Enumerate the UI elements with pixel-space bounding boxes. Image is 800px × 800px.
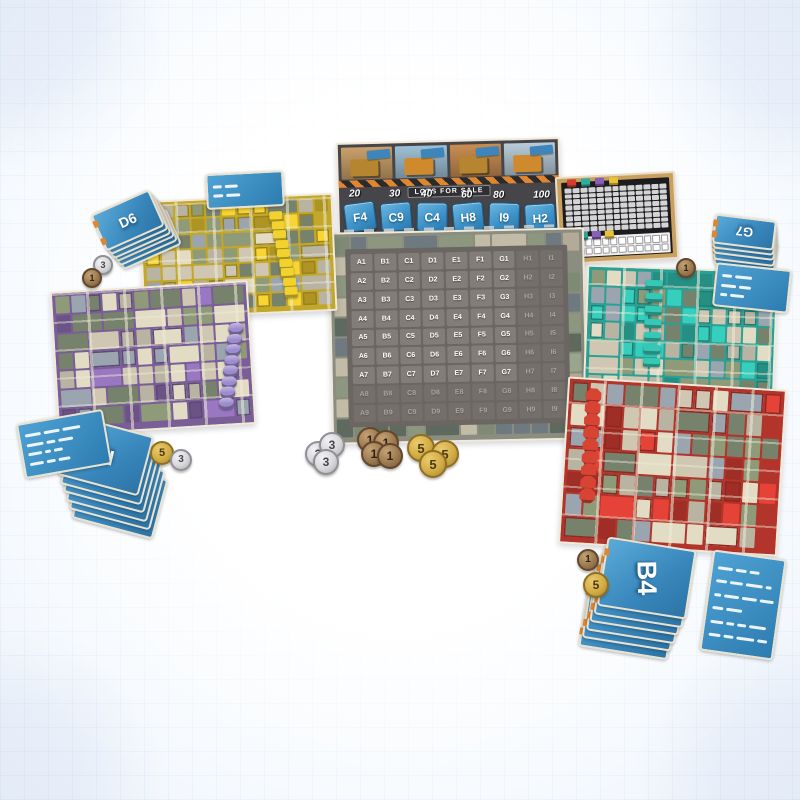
- city-art-block: [141, 403, 172, 422]
- excavator-silhouette: [459, 156, 488, 174]
- city-art-block: [182, 288, 197, 306]
- score-marker-cube: [605, 230, 614, 238]
- city-art-block: [255, 262, 269, 276]
- reference-icon-row: [213, 192, 277, 198]
- city-art-block: [765, 394, 782, 415]
- city-art-block: [59, 352, 74, 370]
- city-art-block: [727, 436, 744, 457]
- grid-cell-b8: B8: [377, 385, 399, 402]
- reference-icon: [708, 633, 721, 638]
- score-marker-cube: [567, 179, 576, 187]
- score-cell: [589, 210, 596, 215]
- city-art-block: [57, 333, 88, 352]
- score-cell: [636, 190, 643, 195]
- city-art-block: [711, 344, 725, 360]
- city-art-block: [146, 267, 160, 281]
- grid-cell-c1: C1: [398, 253, 420, 270]
- score-cell: [628, 191, 635, 196]
- city-art-block: [203, 381, 218, 399]
- city-art-block: [142, 424, 172, 426]
- photo-ribbon: [367, 148, 391, 159]
- city-art-block: [704, 525, 738, 547]
- grid-cell-i7: I7: [543, 363, 565, 380]
- score-cell: [644, 190, 651, 195]
- grid-cell-b2: B2: [374, 272, 396, 289]
- grid-cell-d7: D7: [424, 366, 446, 383]
- city-art-block: [653, 499, 670, 520]
- photo-ribbon: [421, 147, 445, 158]
- reference-icon: [759, 599, 773, 604]
- score-cell: [606, 220, 613, 225]
- grid-cell-h2: H2: [517, 269, 539, 286]
- score-cell: [629, 219, 636, 224]
- construction-photo: [449, 144, 501, 177]
- city-art-block: [622, 288, 636, 304]
- coin-value: 3: [100, 261, 105, 270]
- reference-icon: [735, 568, 746, 572]
- grid-cell-d6: D6: [424, 347, 446, 364]
- score-cell: [613, 208, 620, 213]
- city-art-block: [657, 432, 674, 453]
- reference-icon: [53, 448, 63, 453]
- excavator-silhouette: [513, 154, 542, 172]
- score-cell: [613, 214, 620, 219]
- score-cell: [660, 200, 667, 205]
- grid-cell-f6: F6: [471, 346, 493, 363]
- grid-cell-a6: A6: [352, 348, 374, 365]
- city-art-block: [696, 343, 710, 359]
- score-cell: [566, 222, 573, 227]
- city-art-block: [205, 419, 219, 420]
- strip-cell: [611, 245, 619, 253]
- photo-ribbon: [529, 144, 553, 155]
- score-cell: [661, 206, 668, 211]
- score-cell: [573, 194, 580, 199]
- score-cell: [566, 211, 573, 216]
- city-art-block: [692, 434, 709, 455]
- score-cell: [629, 213, 636, 218]
- grid-cell-b7: B7: [376, 367, 398, 384]
- strip-cell: [585, 247, 593, 255]
- city-art-block: [87, 294, 102, 312]
- score-cell: [621, 202, 628, 207]
- city-art-block: [315, 229, 329, 243]
- reference-icon: [716, 579, 727, 583]
- score-cell: [574, 216, 581, 221]
- city-art-block: [154, 366, 169, 384]
- grid-cell-c2: C2: [398, 272, 420, 289]
- score-cell: [645, 207, 652, 212]
- city-art-block: [108, 386, 139, 405]
- strip-cell: [627, 236, 635, 244]
- city-art-block: [711, 413, 728, 434]
- grid-cell-d8: D8: [424, 384, 446, 401]
- reference-icon: [58, 456, 71, 461]
- grid-cell-d2: D2: [422, 271, 444, 288]
- grid-cell-f8: F8: [472, 383, 494, 400]
- city-art-block: [704, 547, 720, 548]
- city-art-block: [197, 287, 212, 305]
- score-cell: [598, 220, 605, 225]
- city-art-block: [183, 307, 198, 325]
- city-art-block: [190, 203, 204, 217]
- city-art-block: [317, 260, 331, 274]
- grid-cell-b3: B3: [375, 291, 397, 308]
- city-art-block: [695, 389, 712, 410]
- city-art-block: [118, 292, 133, 310]
- grid-cell-c4: C4: [399, 309, 421, 326]
- score-cell: [629, 208, 636, 213]
- coin-value: 1: [683, 264, 688, 273]
- city-art-block: [757, 345, 771, 361]
- city-art-block: [167, 308, 182, 326]
- city-art-block: [206, 218, 220, 232]
- grid-cell-g7: G7: [495, 364, 517, 381]
- city-art-block: [622, 430, 639, 451]
- grid-cell-d9: D9: [425, 403, 447, 420]
- lot-grid: A1B1C1D1E1F1G1H1I1A2B2C2D2E2F2G2H2I2A3B3…: [345, 245, 571, 428]
- strip-cell: [652, 235, 660, 243]
- city-art-block: [745, 437, 762, 458]
- grid-cell-f9: F9: [472, 402, 494, 419]
- grid-cell-d5: D5: [423, 328, 445, 345]
- market-photo-strip: [341, 142, 556, 180]
- city-art-block: [619, 358, 633, 374]
- strip-cell: [635, 236, 643, 244]
- reference-card-teal: [712, 262, 792, 314]
- city-art-block: [192, 250, 206, 264]
- reference-icon-row: [714, 593, 774, 604]
- grid-cell-f2: F2: [470, 270, 492, 287]
- city-art-block: [606, 288, 620, 304]
- city-art-block: [563, 538, 596, 540]
- score-marker-cube: [609, 177, 618, 185]
- grid-cell-i9: I9: [544, 401, 566, 418]
- score-cell: [613, 203, 620, 208]
- city-art-block: [136, 329, 151, 347]
- grid-cell-g8: G8: [496, 383, 518, 400]
- score-cell: [653, 217, 660, 222]
- score-cell: [652, 195, 659, 200]
- city-art-block: [300, 230, 314, 244]
- score-cell: [660, 189, 667, 194]
- city-art-block: [171, 383, 186, 401]
- reference-icon-row: [721, 283, 783, 292]
- score-cell: [628, 185, 635, 190]
- grid-cell-e2: E2: [446, 271, 468, 288]
- city-art-block: [123, 367, 138, 385]
- city-art-block: [666, 325, 680, 341]
- grid-cell-d3: D3: [422, 290, 444, 307]
- city-art-block: [207, 234, 221, 248]
- score-cell: [651, 184, 658, 189]
- city-art-block: [104, 311, 135, 330]
- city-art-block: [673, 455, 707, 477]
- city-art-block: [665, 360, 694, 376]
- lot-price-label: 60: [461, 189, 472, 200]
- grid-cell-c8: C8: [401, 385, 423, 402]
- teal-player-token: [644, 331, 661, 341]
- market-sign: LOTS FOR SALE: [407, 185, 490, 198]
- score-cell: [597, 209, 604, 214]
- reference-icon: [714, 593, 721, 597]
- city-art-block: [639, 431, 656, 452]
- grid-cell-h9: H9: [520, 401, 542, 418]
- reference-card-yellow: [205, 170, 285, 210]
- city-art-block: [138, 348, 153, 366]
- city-art-block: [742, 327, 756, 343]
- city-art-block: [762, 438, 779, 459]
- reference-icon-row: [716, 579, 776, 590]
- city-art-block: [621, 306, 635, 322]
- score-cell: [597, 204, 604, 209]
- city-art-block: [121, 330, 136, 348]
- reference-icon: [749, 570, 759, 574]
- city-art-block: [150, 289, 181, 308]
- grid-cell-b5: B5: [376, 329, 398, 346]
- city-art-block: [674, 433, 691, 454]
- grid-cell-f1: F1: [469, 251, 491, 268]
- grid-cell-a4: A4: [351, 310, 373, 327]
- city-art-block: [237, 217, 251, 231]
- city-art-block: [75, 370, 90, 388]
- city-art-block: [592, 270, 606, 286]
- city-art-block: [623, 407, 640, 428]
- city-art-block: [192, 234, 206, 248]
- grid-cell-b1: B1: [374, 253, 396, 270]
- score-cell: [628, 196, 635, 201]
- coin-bronze-1: 1: [577, 549, 599, 571]
- city-art-block: [603, 451, 637, 473]
- grid-cell-i2: I2: [541, 269, 563, 286]
- city-art-block: [187, 382, 202, 400]
- city-art-block: [705, 502, 722, 523]
- reference-icon: [712, 606, 723, 610]
- lot-card-label: G7: [714, 216, 775, 249]
- excavator-silhouette: [350, 159, 379, 177]
- reference-icon: [720, 292, 728, 296]
- board-game-photo: LOTS FOR SALE 2030406080100 F4C9C4H8I9H2…: [0, 0, 800, 800]
- strip-cell: [618, 237, 626, 245]
- reference-icon: [730, 581, 743, 586]
- teal-player-token: [644, 344, 661, 354]
- score-cell: [590, 215, 597, 220]
- score-cell: [661, 211, 668, 216]
- yellow-player-token: [284, 287, 297, 299]
- city-art-block: [589, 340, 618, 356]
- grid-cell-h6: H6: [519, 345, 541, 362]
- score-cell: [646, 224, 653, 229]
- city-art-block: [709, 435, 726, 456]
- coin-silver-3: 3: [170, 449, 192, 471]
- score-cell: [637, 207, 644, 212]
- grid-cell-h3: H3: [517, 288, 539, 305]
- score-cell: [582, 216, 589, 221]
- coin-value: 3: [178, 455, 184, 465]
- city-art-block: [299, 199, 313, 213]
- strip-cell: [602, 246, 610, 254]
- city-art-block: [605, 406, 622, 427]
- teal-player-token: [643, 357, 660, 367]
- reference-icon: [723, 635, 733, 639]
- grid-cell-d4: D4: [423, 309, 445, 326]
- city-art-block: [682, 290, 696, 306]
- score-cell: [652, 189, 659, 194]
- score-cell: [621, 208, 628, 213]
- city-art-block: [743, 460, 760, 481]
- city-art-block: [604, 429, 621, 450]
- city-art-block: [667, 290, 681, 306]
- city-art-block: [565, 494, 582, 515]
- city-art-block: [723, 503, 740, 524]
- reference-icon: [745, 583, 762, 588]
- city-art-block: [757, 328, 771, 344]
- city-art-block: [676, 411, 710, 433]
- grid-cell-e6: E6: [447, 346, 469, 363]
- score-cell: [653, 206, 660, 211]
- coin-bronze-1: 1: [82, 268, 102, 288]
- city-art-block: [214, 304, 245, 323]
- reference-icon: [749, 625, 766, 630]
- coin-value: 1: [387, 450, 394, 462]
- reference-icon: [726, 622, 734, 626]
- grid-cell-e7: E7: [448, 365, 470, 382]
- score-cell: [660, 195, 667, 200]
- photo-ribbon: [475, 145, 499, 156]
- score-cell: [636, 185, 643, 190]
- city-art-block: [686, 546, 702, 547]
- score-cell: [605, 203, 612, 208]
- reference-icon: [718, 566, 733, 571]
- teal-player-token: [645, 305, 662, 315]
- city-art-block: [202, 363, 217, 381]
- city-art-block: [173, 402, 188, 420]
- grid-cell-i8: I8: [543, 382, 565, 399]
- reference-icon: [28, 451, 42, 456]
- city-art-block: [635, 498, 652, 519]
- grid-cell-a5: A5: [352, 329, 374, 346]
- coin-value: 1: [89, 274, 94, 283]
- score-cell: [566, 216, 573, 221]
- reference-icon: [46, 439, 56, 444]
- grid-cell-h7: H7: [519, 364, 541, 381]
- strip-cell: [619, 245, 627, 253]
- score-cell: [604, 192, 611, 197]
- score-cell: [652, 201, 659, 206]
- city-art-block: [620, 341, 634, 357]
- city-art-block: [728, 309, 742, 325]
- purple-player-token: [219, 397, 235, 410]
- city-art-block: [682, 308, 696, 324]
- city-grid-board: A1B1C1D1E1F1G1H1I1A2B2C2D2E2F2G2H2I2A3B3…: [328, 227, 588, 444]
- city-art-block: [688, 501, 705, 522]
- city-art-block: [756, 363, 770, 379]
- reference-icon: [26, 441, 44, 447]
- score-cell: [644, 201, 651, 206]
- score-cell: [638, 224, 645, 229]
- city-art-block: [72, 313, 103, 332]
- city-art-block: [222, 218, 236, 232]
- city-art-block: [742, 482, 759, 503]
- city-art-block: [589, 357, 618, 373]
- city-art-block: [174, 423, 188, 424]
- city-art-block: [91, 368, 122, 387]
- score-cell: [644, 195, 651, 200]
- city-art-block: [697, 308, 711, 324]
- reference-icon: [25, 432, 42, 438]
- score-cell: [653, 212, 660, 217]
- grid-cell-g5: G5: [494, 326, 516, 343]
- score-cell: [612, 186, 619, 191]
- score-cell: [645, 212, 652, 217]
- score-cell: [653, 223, 660, 228]
- grid-cell-c7: C7: [400, 366, 422, 383]
- city-art-block: [726, 459, 743, 480]
- city-art-block: [681, 343, 695, 359]
- score-cell: [572, 188, 579, 193]
- score-cell: [589, 198, 596, 203]
- city-art-block: [726, 344, 740, 360]
- city-art-block: [742, 345, 756, 361]
- score-cell: [598, 215, 605, 220]
- city-art-block: [591, 287, 605, 303]
- reference-icon-row: [708, 633, 768, 644]
- strip-cell: [644, 244, 652, 252]
- score-cell: [573, 199, 580, 204]
- card-fan-b4: B4: [590, 536, 713, 668]
- grid-cell-g2: G2: [493, 270, 515, 287]
- reference-icon: [225, 184, 238, 188]
- city-art-block: [272, 293, 286, 307]
- score-cell: [580, 188, 587, 193]
- city-art-block: [726, 362, 740, 378]
- coin-value: 5: [593, 579, 600, 591]
- score-cell: [581, 204, 588, 209]
- reference-icon-row: [712, 606, 772, 617]
- city-art-block: [689, 479, 706, 500]
- score-cell: [622, 219, 629, 224]
- city-art-block: [89, 331, 120, 350]
- grid-cell-b9: B9: [377, 404, 399, 421]
- score-cell: [621, 214, 628, 219]
- city-art-block: [239, 248, 253, 262]
- coin-bronze-1: 1: [676, 258, 696, 278]
- city-art-block: [641, 408, 658, 429]
- grid-cell-h5: H5: [518, 326, 540, 343]
- score-cell: [614, 220, 621, 225]
- score-cell: [645, 218, 652, 223]
- score-cell: [659, 183, 666, 188]
- city-art-block: [619, 475, 636, 496]
- grid-cell-c6: C6: [400, 347, 422, 364]
- score-cell: [636, 201, 643, 206]
- city-art-block: [622, 271, 636, 287]
- score-cell: [636, 196, 643, 201]
- city-art-block: [672, 478, 689, 499]
- city-art-block: [60, 371, 75, 389]
- city-art-block: [153, 347, 168, 365]
- city-art-block: [71, 295, 86, 313]
- grid-cell-f4: F4: [470, 308, 492, 325]
- city-art-block: [188, 401, 203, 419]
- score-cell: [637, 218, 644, 223]
- city-art-block: [255, 278, 269, 292]
- grid-cell-g9: G9: [496, 402, 518, 419]
- reference-icon: [46, 459, 55, 464]
- grid-cell-h8: H8: [519, 382, 541, 399]
- city-art-block: [90, 350, 121, 369]
- score-cell: [612, 197, 619, 202]
